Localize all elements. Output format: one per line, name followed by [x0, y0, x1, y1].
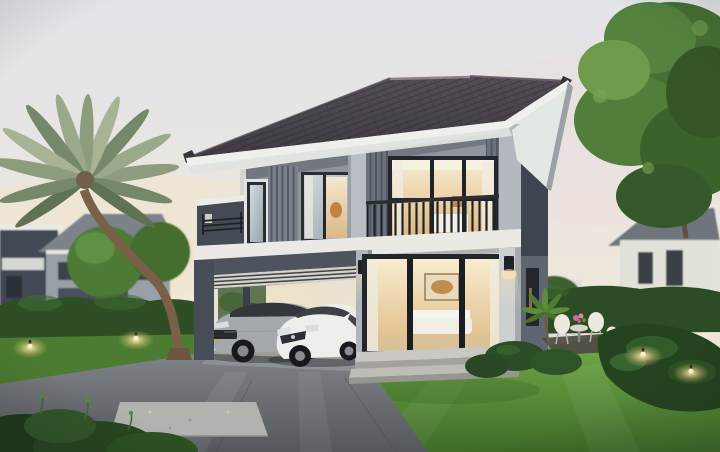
vignette-overlay	[0, 0, 720, 452]
rendered-photo	[0, 0, 720, 452]
scene-canvas	[0, 0, 720, 452]
